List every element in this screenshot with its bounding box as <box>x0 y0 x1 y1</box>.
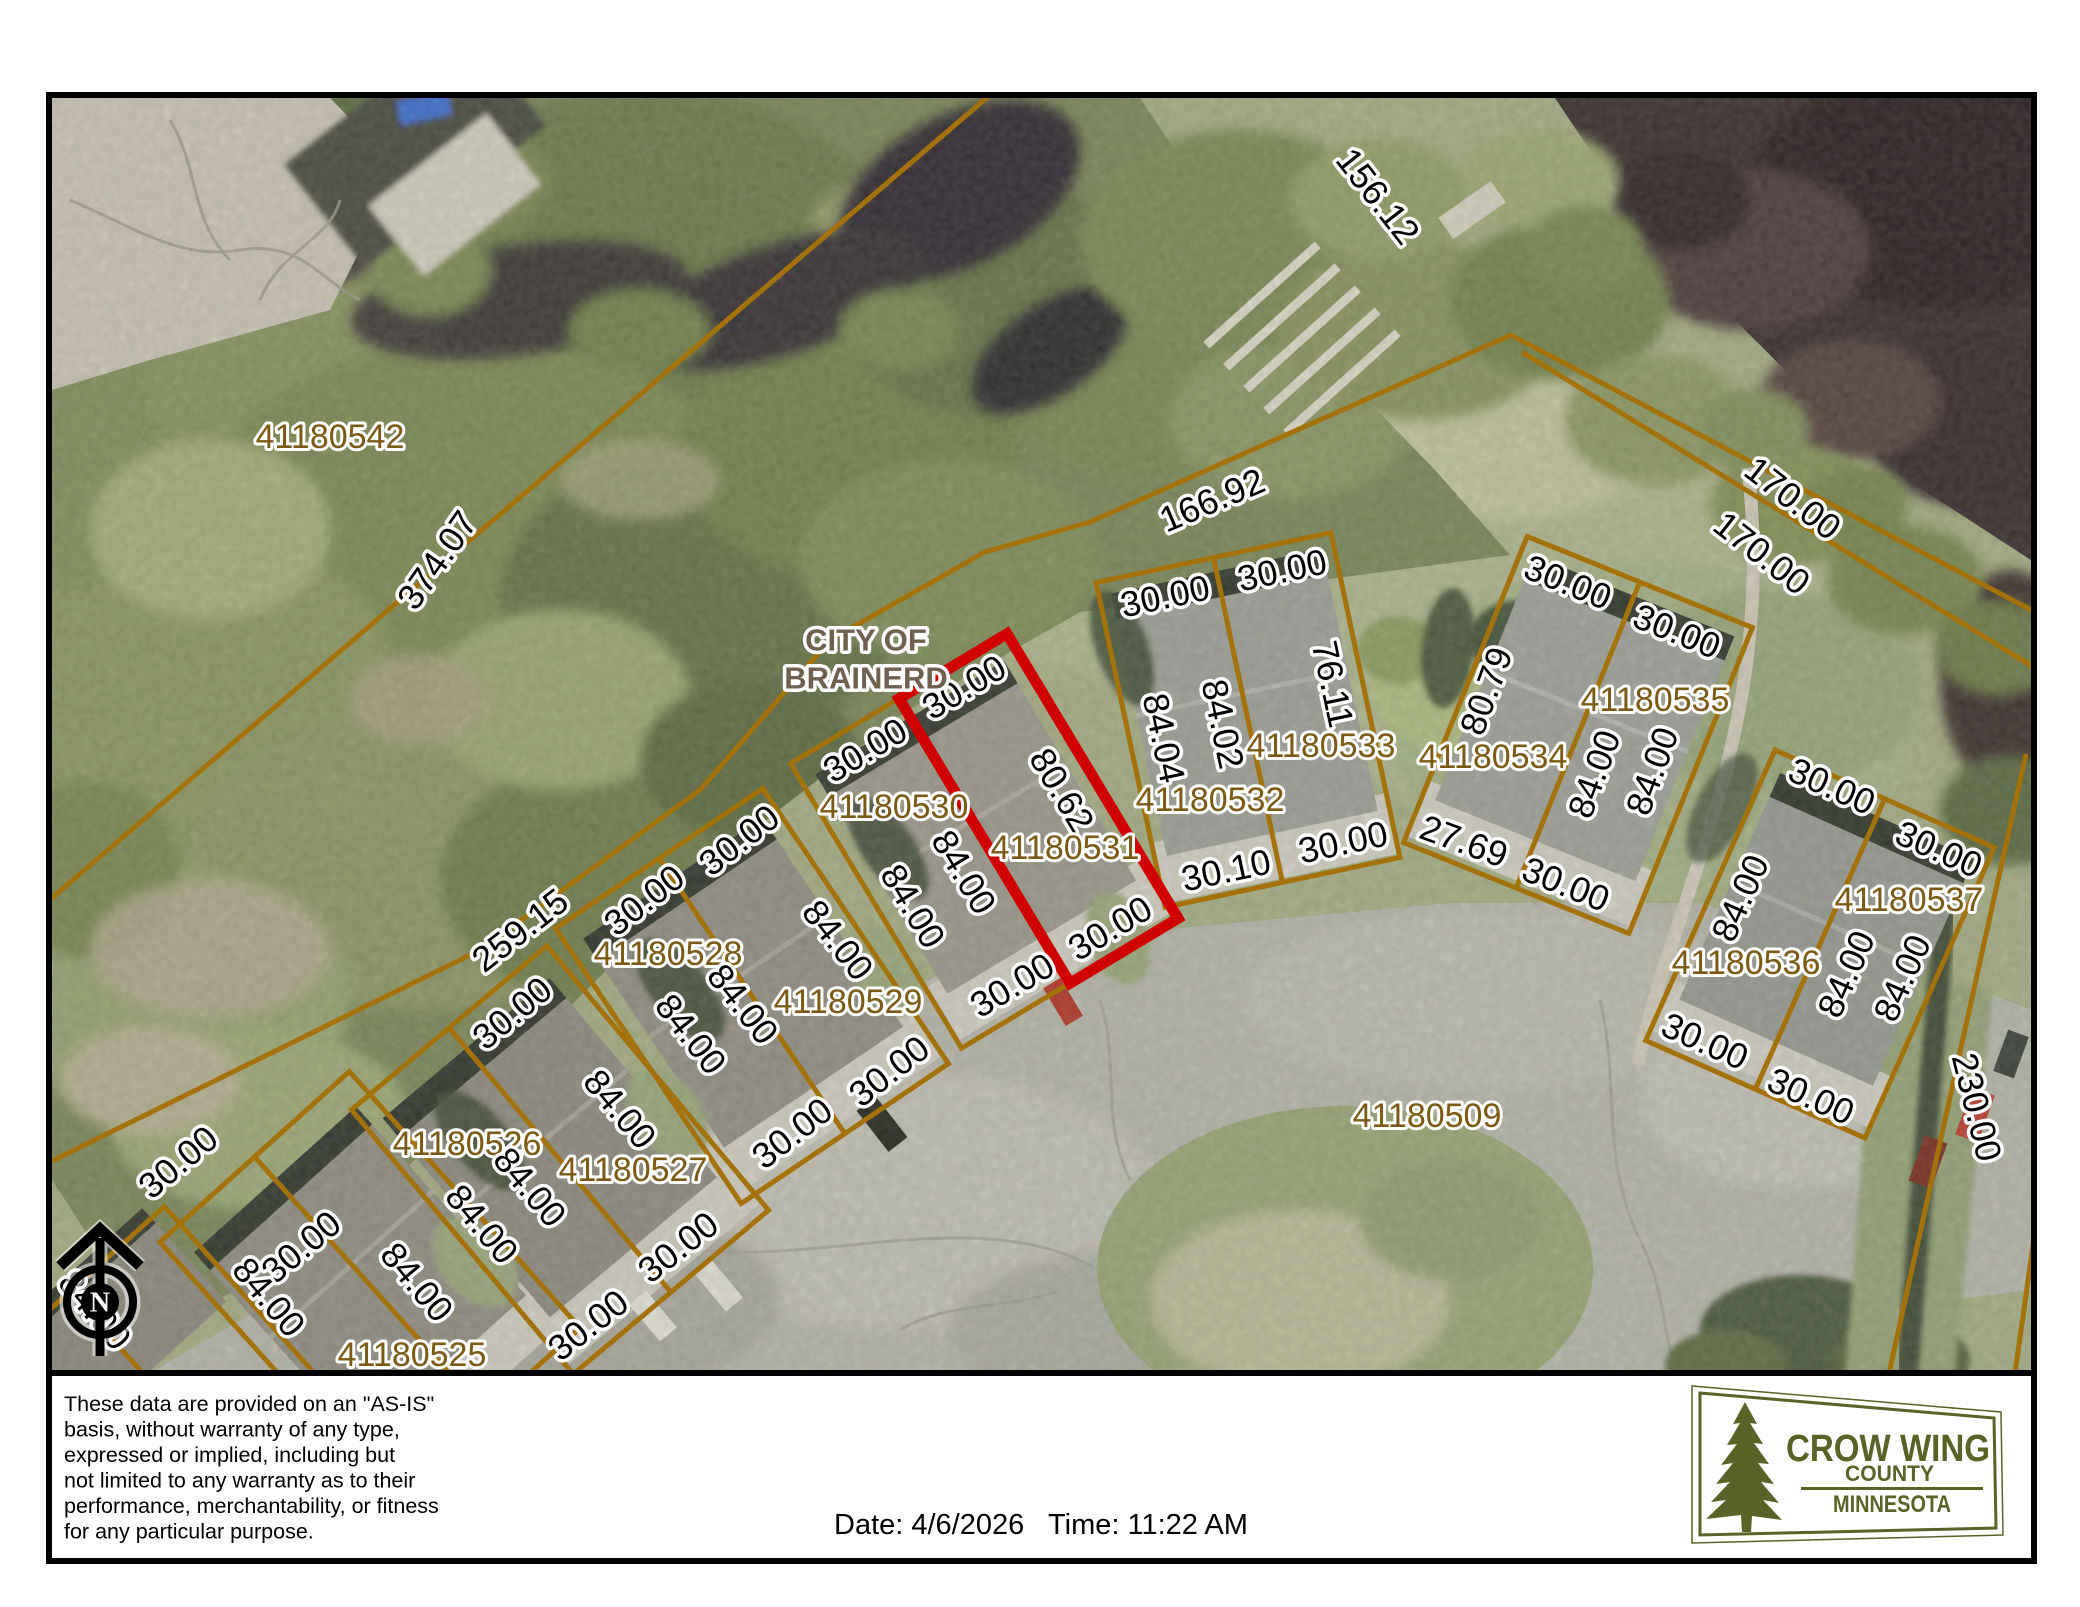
svg-text:41180525: 41180525 <box>338 1336 487 1374</box>
svg-text:These data are provided on an: These data are provided on an "AS-IS" <box>64 1392 434 1416</box>
svg-text:for any particular purpose.: for any particular purpose. <box>64 1520 314 1544</box>
svg-text:41180533: 41180533 <box>1247 727 1396 765</box>
svg-text:41180537: 41180537 <box>1835 881 1984 919</box>
svg-text:41180535: 41180535 <box>1581 681 1730 719</box>
svg-text:basis, without warranty of any: basis, without warranty of any type, <box>64 1418 400 1442</box>
svg-text:Time: 11:22 AM: Time: 11:22 AM <box>1048 1509 1248 1541</box>
svg-text:MINNESOTA: MINNESOTA <box>1833 1491 1951 1518</box>
svg-text:41180530: 41180530 <box>820 788 969 826</box>
svg-text:Date: 4/6/2026: Date: 4/6/2026 <box>834 1509 1024 1541</box>
svg-text:BRAINERD: BRAINERD <box>784 661 948 696</box>
svg-text:41180529: 41180529 <box>774 983 923 1021</box>
svg-text:41180531: 41180531 <box>991 829 1140 867</box>
svg-text:expressed or implied, includin: expressed or implied, including but <box>64 1443 395 1467</box>
svg-text:41180532: 41180532 <box>1136 781 1285 819</box>
svg-text:not limited to any warranty as: not limited to any warranty as to their <box>64 1469 415 1493</box>
svg-text:N: N <box>90 1288 110 1319</box>
svg-text:41180536: 41180536 <box>1672 944 1821 982</box>
svg-text:41180534: 41180534 <box>1419 738 1568 776</box>
svg-text:41180527: 41180527 <box>559 1151 708 1189</box>
svg-text:41180542: 41180542 <box>256 418 405 456</box>
svg-text:COUNTY: COUNTY <box>1845 1461 1934 1486</box>
svg-text:CITY OF: CITY OF <box>805 623 927 658</box>
svg-text:performance, merchantability,: performance, merchantability, or fitness <box>64 1494 439 1518</box>
svg-text:41180509: 41180509 <box>1353 1097 1502 1135</box>
